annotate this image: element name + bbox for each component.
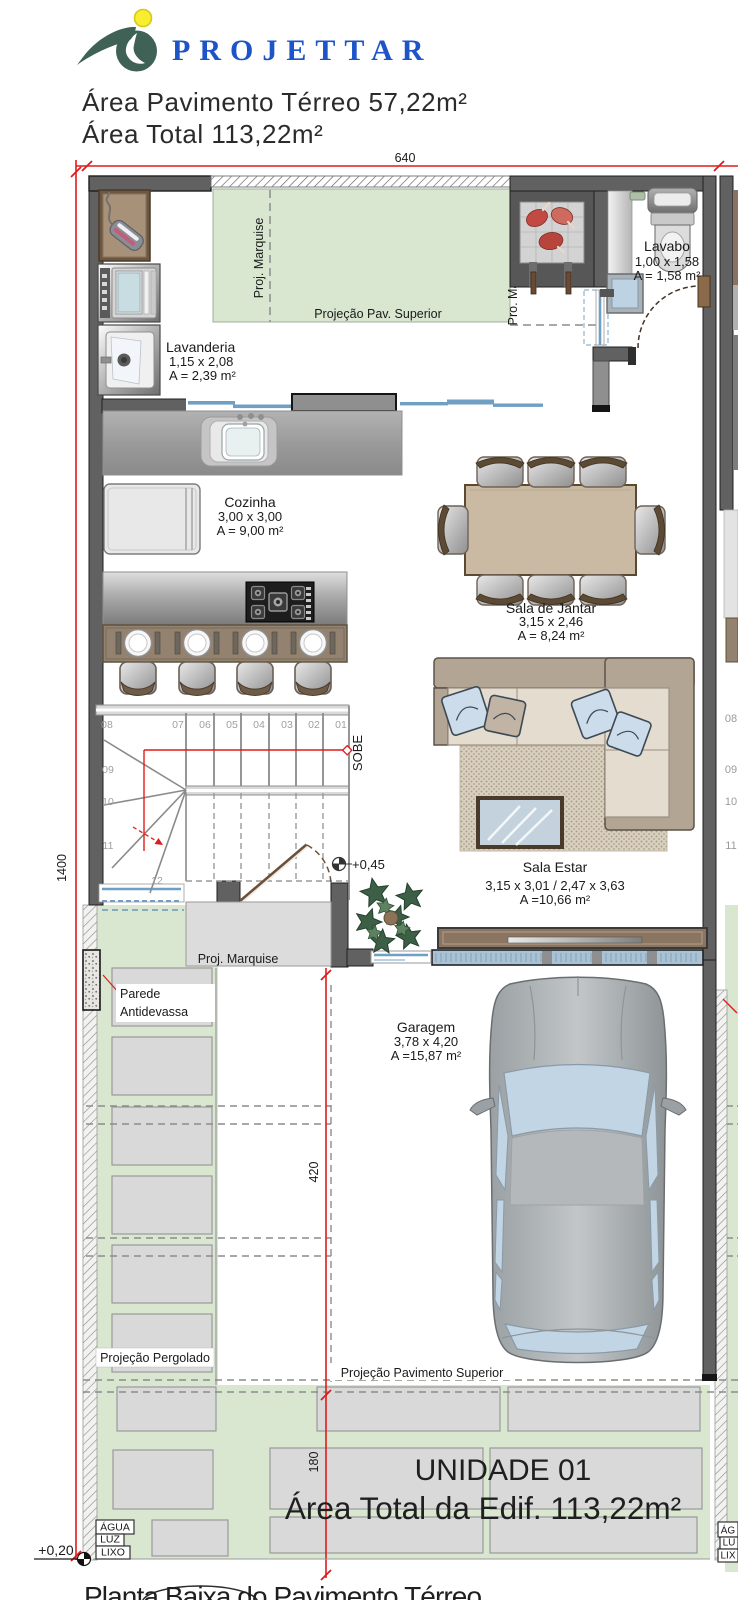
svg-text:A = 2,39 m²: A = 2,39 m² (169, 368, 237, 383)
svg-text:ÁG: ÁG (721, 1524, 736, 1537)
svg-text:+0,45: +0,45 (352, 857, 385, 872)
svg-text:01: 01 (335, 719, 347, 731)
svg-text:Parede: Parede (120, 987, 160, 1001)
svg-text:07: 07 (172, 719, 184, 731)
svg-text:UNIDADE 01: UNIDADE 01 (415, 1454, 592, 1487)
svg-text:LUZ: LUZ (100, 1534, 120, 1546)
svg-text:Proj. Marquise: Proj. Marquise (252, 218, 266, 299)
svg-text:Área Total da Edif. 113,22m²: Área Total da Edif. 113,22m² (285, 1490, 681, 1526)
svg-text:Área Pavimento Térreo 57,22m²: Área Pavimento Térreo 57,22m² (82, 87, 467, 117)
svg-text:1400: 1400 (55, 854, 69, 882)
svg-text:3,15 x 3,01 / 2,47 x 3,63: 3,15 x 3,01 / 2,47 x 3,63 (485, 878, 625, 893)
svg-text:A = 1,58 m²: A = 1,58 m² (634, 268, 702, 283)
svg-text:Área Total 113,22m²: Área Total 113,22m² (82, 119, 323, 149)
svg-text:10: 10 (725, 796, 737, 808)
svg-text:A =10,66 m²: A =10,66 m² (520, 892, 591, 907)
svg-text:Lavabo: Lavabo (644, 238, 690, 254)
svg-text:Planta Baixa do Pavimento Térr: Planta Baixa do Pavimento Térreo (84, 1581, 481, 1600)
svg-text:Proj. Marquise: Proj. Marquise (198, 952, 279, 966)
svg-text:A = 8,24 m²: A = 8,24 m² (518, 628, 586, 643)
svg-text:1,00 x 1,58: 1,00 x 1,58 (635, 254, 699, 269)
svg-text:02: 02 (308, 719, 320, 731)
svg-text:Projeção Pergolado: Projeção Pergolado (100, 1351, 210, 1365)
svg-text:Projeção Pavimento Superior: Projeção Pavimento Superior (341, 1366, 504, 1380)
svg-text:06: 06 (199, 719, 211, 731)
svg-text:Sala Estar: Sala Estar (523, 859, 588, 875)
svg-text:09: 09 (725, 764, 737, 776)
svg-text:+0,20: +0,20 (38, 1542, 74, 1558)
svg-text:3,00 x 3,00: 3,00 x 3,00 (218, 509, 282, 524)
svg-text:Antidevassa: Antidevassa (120, 1005, 188, 1019)
svg-text:10: 10 (102, 796, 114, 808)
svg-text:640: 640 (395, 151, 416, 165)
svg-text:SOBE: SOBE (350, 735, 365, 771)
svg-text:Garagem: Garagem (397, 1019, 455, 1035)
svg-text:LIX: LIX (720, 1551, 735, 1562)
svg-text:180: 180 (307, 1452, 321, 1473)
svg-text:3,15 x 2,46: 3,15 x 2,46 (519, 614, 583, 629)
svg-text:05: 05 (226, 719, 238, 731)
svg-text:LU: LU (723, 1538, 736, 1549)
svg-text:A = 9,00 m²: A = 9,00 m² (217, 523, 285, 538)
svg-text:09: 09 (102, 764, 114, 776)
svg-text:12: 12 (151, 875, 163, 887)
svg-text:3,78 x 4,20: 3,78 x 4,20 (394, 1034, 458, 1049)
svg-text:04: 04 (253, 719, 265, 731)
svg-text:11: 11 (103, 840, 114, 852)
svg-text:PROJETTAR: PROJETTAR (172, 34, 432, 67)
svg-text:A =15,87 m²: A =15,87 m² (391, 1048, 462, 1063)
svg-text:LIXO: LIXO (101, 1547, 125, 1559)
svg-text:Cozinha: Cozinha (224, 494, 276, 510)
svg-text:11: 11 (725, 840, 736, 852)
svg-text:03: 03 (281, 719, 293, 731)
svg-text:420: 420 (307, 1162, 321, 1183)
svg-text:08: 08 (725, 713, 737, 725)
svg-text:08: 08 (101, 719, 113, 731)
svg-text:1,15 x 2,08: 1,15 x 2,08 (169, 354, 233, 369)
svg-text:Projeção Pav. Superior: Projeção Pav. Superior (314, 307, 442, 321)
svg-text:Lavanderia: Lavanderia (166, 339, 235, 355)
svg-text:ÁGUA: ÁGUA (100, 1521, 130, 1534)
